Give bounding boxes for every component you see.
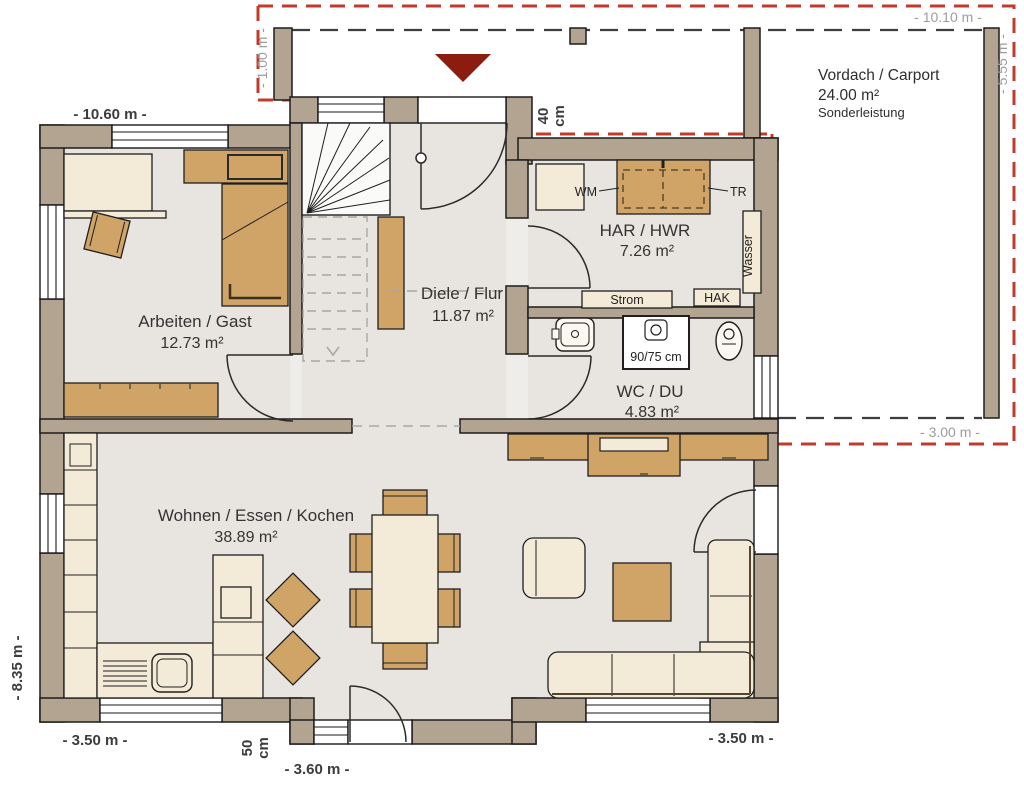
room-area-har: 7.26 m² bbox=[620, 243, 675, 260]
tv bbox=[600, 438, 668, 451]
wall-bay-bottom-1 bbox=[290, 720, 314, 744]
wall-top-har bbox=[518, 138, 778, 160]
doorway-arbeiten bbox=[290, 354, 302, 419]
dim-entry-depth-value: 40 bbox=[535, 108, 552, 125]
carport-post-middle bbox=[570, 28, 586, 44]
washer-dryer bbox=[617, 160, 710, 214]
room-label-diele: Diele / Flur bbox=[421, 284, 504, 303]
dim-bay-depth-unit: cm bbox=[255, 737, 272, 759]
toilet bbox=[716, 322, 742, 360]
dim-bay-depth-value: 50 bbox=[239, 740, 256, 757]
hall-wardrobe bbox=[378, 217, 404, 329]
window-left-arbeiten bbox=[40, 205, 64, 299]
wall-divider-left bbox=[40, 419, 352, 433]
hak-label: HAK bbox=[704, 291, 730, 305]
dining-chair-bottom bbox=[383, 643, 427, 669]
dim-carport-bottom: - 3.00 m - bbox=[920, 424, 980, 440]
dining-chair-right-1 bbox=[436, 534, 460, 572]
desk bbox=[64, 154, 152, 211]
dim-bay-width: - 3.60 m - bbox=[284, 761, 349, 778]
wm-label: WM bbox=[575, 185, 597, 199]
wall-right-3 bbox=[754, 554, 778, 722]
dining-chair-left-2 bbox=[350, 589, 374, 627]
carport-area-label: 24.00 m² bbox=[818, 87, 879, 104]
window-top-arbeiten bbox=[112, 125, 228, 148]
room-area-wc: 4.83 m² bbox=[625, 404, 680, 421]
washbasin bbox=[552, 318, 594, 351]
window-bay-sidelight bbox=[314, 720, 348, 744]
wall-top-arbeiten-1 bbox=[40, 125, 112, 148]
dining-chair-left-1 bbox=[350, 534, 374, 572]
window-stair bbox=[318, 97, 384, 123]
kitchen-peninsula bbox=[213, 555, 263, 698]
carport-label: Vordach / Carport bbox=[818, 67, 940, 84]
wall-bottom-left-1 bbox=[40, 698, 100, 722]
wall-front-entry-1 bbox=[290, 97, 318, 123]
wall-diele-har-1 bbox=[506, 160, 528, 218]
wall-diele-har-2 bbox=[506, 286, 528, 354]
strom-label: Strom bbox=[610, 293, 643, 307]
carport-post-right bbox=[744, 28, 760, 138]
dim-carport-top: - 10.10 m - bbox=[914, 9, 982, 25]
coffee-table bbox=[613, 563, 671, 621]
dim-house-left: - 8.35 m - bbox=[9, 635, 26, 700]
dim-entry-depth-unit: cm bbox=[551, 105, 568, 127]
room-area-wohnen: 38.89 m² bbox=[214, 529, 278, 546]
floor-plan: Vordach / Carport 24.00 m² Sonderleistun… bbox=[0, 0, 1024, 786]
sink bbox=[152, 654, 192, 692]
entrance-arrow-icon bbox=[435, 54, 491, 82]
dim-bottom-right: - 3.50 m - bbox=[708, 730, 773, 747]
window-right-wc bbox=[754, 356, 778, 418]
bed-pillow bbox=[228, 155, 282, 179]
room-label-wohnen: Wohnen / Essen / Kochen bbox=[158, 506, 354, 525]
wasser-label: Wasser bbox=[741, 235, 755, 277]
room-label-wc: WC / DU bbox=[616, 382, 683, 401]
dining-chair-top bbox=[383, 490, 427, 516]
wall-arbeiten-diele bbox=[290, 123, 302, 354]
wall-front-entry-2 bbox=[384, 97, 418, 123]
doorway-wc bbox=[506, 354, 528, 419]
carport-note: Sonderleistung bbox=[818, 105, 905, 120]
room-area-diele: 11.87 m² bbox=[432, 308, 495, 325]
dim-carport-right: - 5.55 m - bbox=[994, 34, 1010, 94]
front-door-handle-icon bbox=[416, 153, 426, 163]
armchair bbox=[523, 538, 585, 598]
tr-label: TR bbox=[730, 185, 747, 199]
doorway-har bbox=[506, 218, 528, 286]
room-area-arbeiten: 12.73 m² bbox=[160, 335, 224, 352]
kitchen-sink-counter bbox=[97, 643, 213, 698]
sideboard bbox=[64, 383, 218, 417]
room-label-har: HAR / HWR bbox=[600, 221, 691, 240]
wall-left-2 bbox=[40, 299, 64, 494]
window-kitchen bbox=[100, 698, 222, 722]
dim-house-top: - 10.60 m - bbox=[73, 106, 146, 123]
floor-bay bbox=[314, 698, 512, 720]
dining-table bbox=[372, 515, 438, 643]
kitchen-left-run bbox=[64, 433, 97, 698]
room-label-arbeiten: Arbeiten / Gast bbox=[138, 312, 252, 331]
window-bottom-right bbox=[586, 698, 710, 722]
carport-post-left bbox=[274, 28, 292, 100]
floor-plan-svg: Vordach / Carport 24.00 m² Sonderleistun… bbox=[0, 0, 1024, 786]
dim-carport-left: - 1.00 m - bbox=[254, 28, 270, 88]
window-left-wohnen bbox=[40, 494, 64, 553]
guest-bed bbox=[222, 184, 288, 306]
wall-left-3 bbox=[40, 553, 64, 722]
shower: 90/75 cm bbox=[623, 316, 689, 369]
wall-divider-right bbox=[460, 419, 778, 433]
door-gap-right-terrace bbox=[754, 486, 778, 554]
dim-bottom-left: - 3.50 m - bbox=[62, 732, 127, 749]
wall-bottom-right-2 bbox=[710, 698, 778, 722]
wall-bottom-right-1 bbox=[512, 698, 586, 722]
door-gap-front bbox=[418, 97, 506, 123]
shower-size-label: 90/75 cm bbox=[630, 350, 681, 364]
office-chair bbox=[84, 212, 130, 258]
dining-chair-right-2 bbox=[436, 589, 460, 627]
